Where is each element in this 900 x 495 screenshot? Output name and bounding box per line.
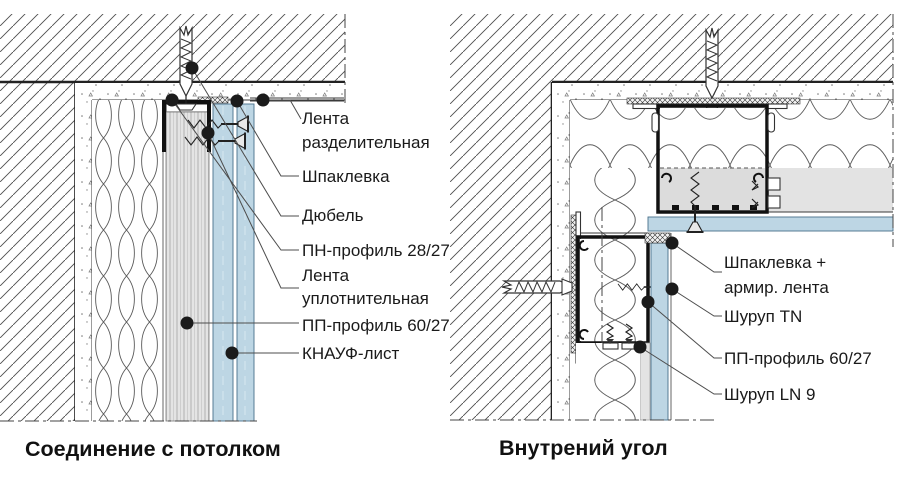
callout-dot-pp-profile <box>181 317 194 330</box>
drawing-canvas: Лента разделительная Шпаклевка Дюбель ПН… <box>0 0 900 495</box>
panel-title-right: Внутрений угол <box>499 436 668 460</box>
panel-internal-corner: Шпаклевка + армир. лента Шуруп TN ПП-про… <box>450 14 893 460</box>
strap-clip-left <box>603 343 618 349</box>
callout-dot-screw-ln <box>634 341 647 354</box>
label-sealing-tape-line1: Лента <box>302 266 350 285</box>
sealing-tape-strip-ceiling <box>627 98 800 104</box>
profile-knockout-left <box>652 113 659 132</box>
label-screw-tn: Шуруп TN <box>724 307 802 326</box>
label-pp-profile: ПП-профиль 60/27 <box>724 349 872 368</box>
label-sealing-tape-line2: уплотнительная <box>302 289 429 308</box>
insulation-layer <box>92 100 163 421</box>
label-screw-ln: Шуруп LN 9 <box>724 385 816 404</box>
callout-line <box>672 289 722 316</box>
callout-dot-putty-tape <box>666 237 679 250</box>
callout-dot-pn-profile <box>166 94 179 107</box>
label-pn-profile: ПН-профиль 28/27 <box>302 241 450 260</box>
construction-detail-drawing: Лента разделительная Шпаклевка Дюбель ПН… <box>0 0 900 495</box>
callout-dot-divider-tape <box>257 94 270 107</box>
connector-clip-upper <box>768 178 780 190</box>
label-putty: Шпаклевка <box>302 167 390 186</box>
ceiling-dowel-anchor <box>180 26 192 96</box>
callout-dot-dowel <box>186 62 199 75</box>
profile-knockout-right <box>768 113 775 132</box>
callout-line <box>672 243 722 272</box>
callout-dot-sealing-tape <box>202 127 215 140</box>
label-putty-tape-line2: армир. лента <box>724 278 829 297</box>
ceiling-plaster-layer <box>552 83 893 100</box>
pp-profile-channel-fill <box>660 168 765 210</box>
wall-plaster-layer <box>75 83 92 421</box>
label-knauf-sheet: КНАУФ-лист <box>302 344 400 363</box>
knauf-ceiling-sheet <box>648 217 893 231</box>
ceiling-slab-hatch <box>0 14 345 82</box>
hanger-box-insulation <box>660 108 765 168</box>
ceiling-profile-zone <box>767 168 893 212</box>
label-divider-tape-line2: разделительная <box>302 133 430 152</box>
callout-dot-knauf-sheet <box>226 347 239 360</box>
ceiling-dowel-anchor <box>706 28 718 98</box>
panel-ceiling-connection: Лента разделительная Шпаклевка Дюбель ПН… <box>0 14 450 461</box>
panel-title-left: Соединение с потолком <box>25 437 281 461</box>
label-dowel: Дюбель <box>302 206 364 225</box>
label-putty-tape-line1: Шпаклевка + <box>724 253 826 272</box>
label-pp-profile: ПП-профиль 60/27 <box>302 316 450 335</box>
wall-plaster-layer <box>552 83 570 420</box>
label-divider-tape-line1: Лента <box>302 109 350 128</box>
insulation-below-box <box>576 343 640 420</box>
connector-clip-lower <box>768 196 780 208</box>
knauf-wall-sheet <box>651 243 668 420</box>
wall-profile-flange-strip <box>640 343 650 420</box>
callout-dot-screw-tn <box>666 283 679 296</box>
pp-profile-60-27-side <box>166 112 209 421</box>
wall-box-insulation <box>580 239 646 341</box>
callout-dot-putty <box>231 95 244 108</box>
callout-dot-pp-profile <box>642 296 655 309</box>
wall-slab-hatch <box>0 82 75 421</box>
